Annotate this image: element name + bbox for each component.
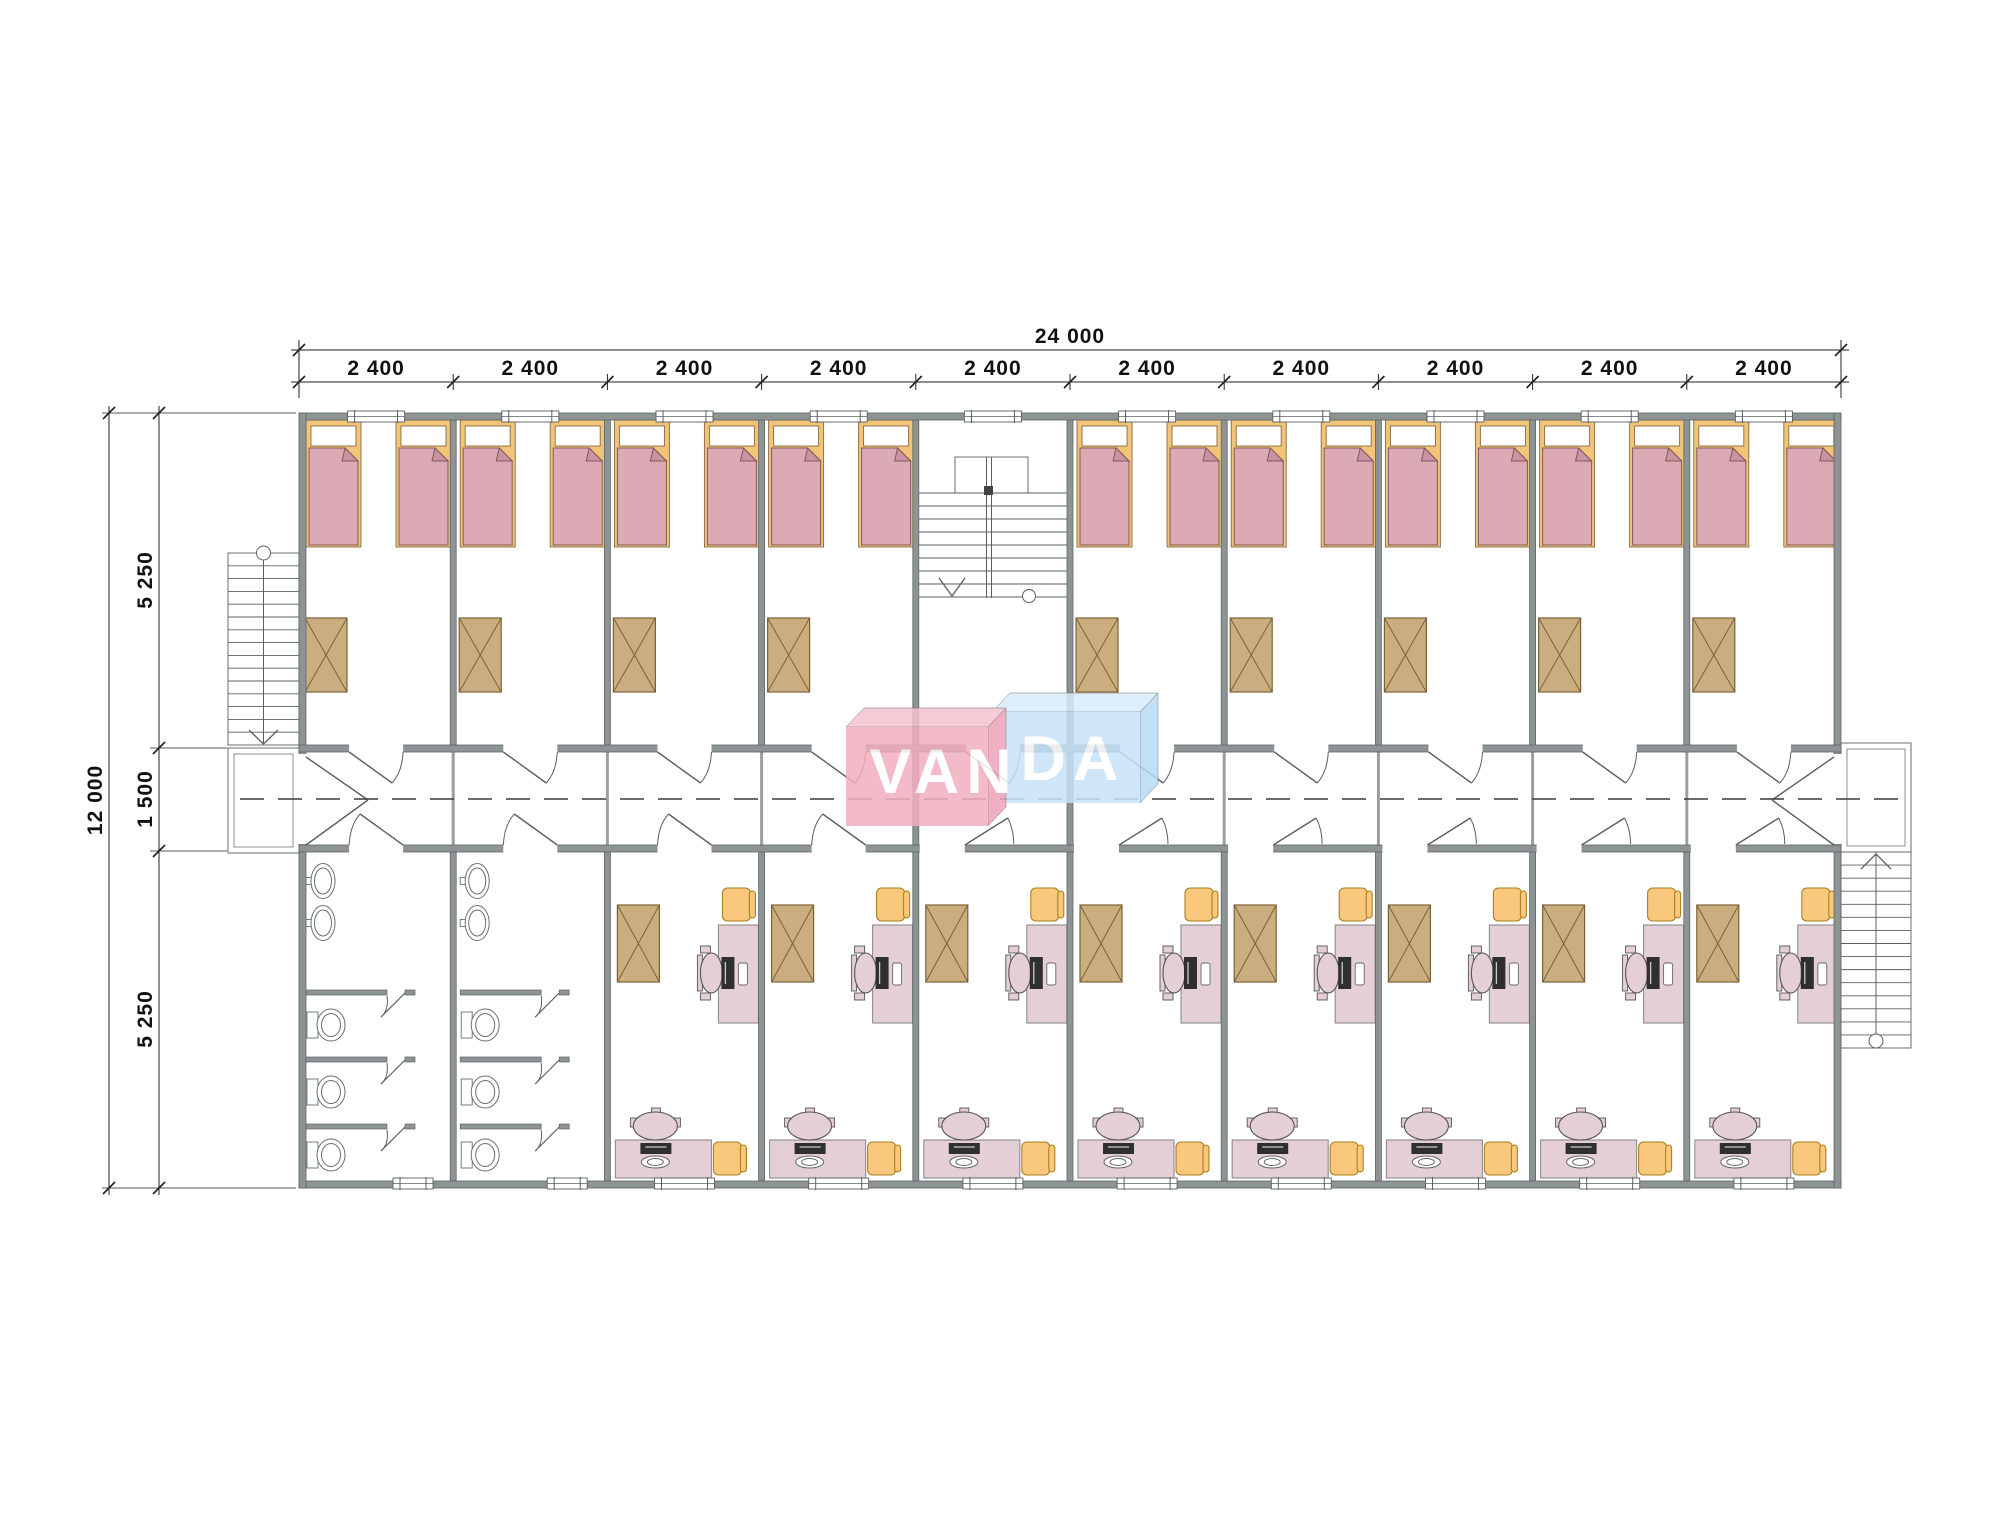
stool-seat [877, 888, 905, 921]
stool [1330, 1142, 1363, 1175]
dim-label-left-total: 12 000 [84, 765, 107, 835]
window [1273, 410, 1330, 423]
stool-back [749, 891, 755, 918]
window [502, 410, 559, 423]
wardrobe-table [1543, 905, 1585, 982]
bed [1540, 420, 1595, 547]
wardrobe-table [1080, 905, 1122, 982]
partition-wall [1530, 420, 1536, 752]
monitor-screen [1338, 957, 1351, 989]
chair-seat [1780, 953, 1802, 993]
bed [1630, 420, 1685, 547]
partition-wall [1684, 852, 1690, 1181]
bed-blanket [1633, 448, 1682, 545]
door-swing-arc [1163, 752, 1174, 783]
office-chair [630, 1108, 680, 1140]
chair-arm [700, 946, 710, 953]
bed-blanket [553, 448, 602, 545]
door-leaf [1736, 818, 1779, 845]
stool [1493, 888, 1526, 921]
stool-back [1058, 891, 1064, 918]
stool [722, 888, 755, 921]
toilet-stall [306, 1124, 415, 1171]
window [547, 1177, 587, 1190]
chair-arm [1163, 946, 1173, 953]
stool-back [1212, 891, 1218, 918]
office-chair [1093, 1108, 1143, 1140]
dim-label-top-segment: 2 400 [810, 357, 868, 380]
bed [614, 420, 669, 547]
window [1735, 410, 1792, 423]
bed-blanket [772, 448, 821, 545]
partition-wall [450, 420, 456, 752]
chair-seat [1404, 1112, 1448, 1140]
door-leaf [1273, 818, 1316, 845]
entry-landing-inner [1847, 749, 1905, 846]
door-opening [349, 744, 403, 753]
toilet-tank [307, 1012, 318, 1038]
entry-landing [228, 748, 299, 853]
door-swing-arc [812, 814, 823, 845]
stool [1648, 888, 1681, 921]
bed-pillow [774, 426, 819, 446]
bedroom [1693, 420, 1839, 692]
wardrobe-table [305, 618, 347, 692]
monitor-screen [1257, 1143, 1288, 1154]
dim-label-top-segment: 2 400 [964, 357, 1022, 380]
chair-arm [1009, 946, 1019, 953]
stall-wall [460, 1057, 541, 1062]
door-opening [658, 744, 712, 753]
stool-seat [722, 888, 750, 921]
bed-blanket [862, 448, 911, 545]
wardrobe-table [617, 905, 659, 982]
door-opening [1382, 844, 1427, 853]
bedroom [305, 420, 451, 692]
bed-blanket [707, 448, 756, 545]
monitor-screen [1801, 957, 1814, 989]
chair-arm [1626, 993, 1636, 1000]
door-leaf [1427, 818, 1470, 845]
monitor-screen [1103, 1143, 1134, 1154]
wardrobe-table [1230, 618, 1272, 692]
stool-back [1366, 891, 1372, 918]
door-opening [1074, 844, 1119, 853]
window [1734, 1177, 1794, 1190]
toilet-tank [461, 1012, 472, 1038]
study-room [1541, 888, 1684, 1178]
bed-pillow [1326, 426, 1371, 446]
chair-seat [1096, 1112, 1140, 1140]
dim-label-top-segment: 2 400 [1427, 357, 1485, 380]
toilet-stall [306, 990, 415, 1041]
stall-wall [306, 990, 387, 995]
bed-pillow [1789, 426, 1834, 446]
wardrobe-table [926, 905, 968, 982]
entrance-door-leaf [306, 757, 368, 800]
stool [1793, 1142, 1826, 1175]
window [1271, 1177, 1331, 1190]
chair-arm [1163, 993, 1173, 1000]
stair-start-circle [257, 546, 271, 560]
monitor-screen [1647, 957, 1660, 989]
door-swing-arc [349, 814, 360, 845]
sink [460, 864, 489, 899]
bed-pillow [1545, 426, 1590, 446]
bed-blanket [1170, 448, 1219, 545]
bed-pillow [619, 426, 664, 446]
toilet-tank [307, 1079, 318, 1105]
chair-arm [700, 993, 710, 1000]
window [1581, 410, 1638, 423]
partition-wall [604, 420, 610, 752]
chair-seat [1009, 953, 1031, 993]
bedroom [1230, 420, 1376, 692]
door-opening [1537, 844, 1582, 853]
dim-label-top-segment: 2 400 [1273, 357, 1331, 380]
stool-back [895, 1145, 901, 1172]
monitor-screen [1411, 1143, 1442, 1154]
office-chair [785, 1108, 835, 1140]
bed-blanket [1787, 448, 1836, 545]
partition-wall [913, 852, 919, 1181]
door-swing-arc [1780, 752, 1791, 783]
partition-wall [1375, 852, 1381, 1181]
dim-label-top-segment: 2 400 [656, 357, 714, 380]
stair-start-circle [1023, 590, 1036, 603]
stair-direction-arrow [939, 578, 965, 596]
bed-blanket [1388, 448, 1437, 545]
door-opening [1737, 744, 1791, 753]
mouse [641, 1156, 669, 1168]
partition-wall [759, 852, 765, 1181]
bed-blanket [1543, 448, 1592, 545]
partition-wall [1221, 420, 1227, 752]
chair-seat [855, 953, 877, 993]
keyboard [1664, 963, 1673, 985]
window [1117, 1177, 1177, 1190]
window [963, 1177, 1023, 1190]
stall-wall-stub [405, 990, 415, 995]
stool-back [1511, 1145, 1517, 1172]
stall-door-arc [535, 996, 541, 1017]
stool-back [1820, 1145, 1826, 1172]
door-leaf [1274, 752, 1317, 783]
door-swing-arc [1779, 818, 1785, 844]
stool-seat [1484, 1142, 1512, 1175]
study-room [924, 888, 1067, 1178]
stool-back [1675, 891, 1681, 918]
logo-box-blue-top [992, 693, 1158, 712]
entry-landing [1841, 743, 1911, 852]
study-room [1078, 888, 1221, 1178]
door-swing-arc [1316, 818, 1322, 844]
bed [1231, 420, 1286, 547]
window [393, 1177, 433, 1190]
stool [868, 1142, 901, 1175]
bed-pillow [1699, 426, 1744, 446]
wardrobe-table [459, 618, 501, 692]
dim-label-left-segment: 5 250 [134, 551, 157, 609]
dim-label-left-segment: 1 500 [134, 770, 157, 828]
door-leaf [1737, 752, 1780, 783]
keyboard [1509, 963, 1518, 985]
stool [1185, 888, 1218, 921]
partition-wall [604, 852, 610, 1181]
chair-arm [855, 993, 865, 1000]
stall-door-arc [381, 1063, 387, 1084]
stool-seat [1185, 888, 1213, 921]
bed-blanket [617, 448, 666, 545]
door-opening [503, 844, 557, 853]
stool-back [1049, 1145, 1055, 1172]
mouse [1721, 1156, 1749, 1168]
wardrobe-table [613, 618, 655, 692]
window [1426, 1177, 1486, 1190]
bedroom [1384, 420, 1530, 692]
dim-label-left-segment: 5 250 [134, 990, 157, 1048]
bed-pillow [709, 426, 754, 446]
stool-seat [1330, 1142, 1358, 1175]
window [964, 410, 1021, 423]
entrance-door-leaf [306, 800, 368, 845]
monitor-screen [1566, 1143, 1597, 1154]
monitor-screen [949, 1143, 980, 1154]
bed-pillow [1236, 426, 1281, 446]
chair-seat [1163, 953, 1185, 993]
stall-wall-stub [405, 1057, 415, 1062]
stool [1031, 888, 1064, 921]
keyboard [1047, 963, 1056, 985]
stall-wall [460, 1124, 541, 1129]
door-swing-arc [1625, 818, 1631, 844]
bed-pillow [1082, 426, 1127, 446]
entry-landing-inner [234, 754, 293, 847]
bed-pillow [465, 426, 510, 446]
entrance-door-leaf [1772, 757, 1834, 800]
bed-blanket [399, 448, 448, 545]
door-swing-arc [1008, 818, 1014, 844]
staircase-center [919, 457, 1067, 603]
mouse [1104, 1156, 1132, 1168]
dim-label-top-segment: 2 400 [1581, 357, 1639, 380]
stool-seat [713, 1142, 741, 1175]
stool [713, 1142, 746, 1175]
wardrobe-table [1234, 905, 1276, 982]
door-opening [503, 744, 557, 753]
door-leaf [1582, 818, 1625, 845]
door-opening [1691, 844, 1736, 853]
bed-pillow [1635, 426, 1680, 446]
door-leaf [514, 814, 557, 845]
stool-seat [1031, 888, 1059, 921]
stall-wall [306, 1124, 387, 1129]
partition-wall [1221, 852, 1227, 1181]
window [348, 410, 405, 423]
chair-arm [1009, 993, 1019, 1000]
stool [1022, 1142, 1055, 1175]
door-leaf [1583, 752, 1626, 783]
wardrobe-table [1693, 618, 1735, 692]
bed-blanket [1234, 448, 1283, 545]
study-room [1386, 888, 1529, 1178]
office-chair [1556, 1108, 1606, 1140]
partition-wall [913, 420, 919, 752]
chair-arm [1317, 993, 1327, 1000]
chair-arm [1317, 946, 1327, 953]
module-joint-line [606, 752, 609, 845]
stool [1339, 888, 1372, 921]
stall-wall-stub [405, 1124, 415, 1129]
bedroom [1539, 420, 1685, 692]
bed [1321, 420, 1376, 547]
logo-text-left: VAN [869, 737, 1018, 807]
chair-seat [1250, 1112, 1294, 1140]
chair-seat [788, 1112, 832, 1140]
office-chair [939, 1108, 989, 1140]
stool-seat [1802, 888, 1830, 921]
stool [1484, 1142, 1517, 1175]
stall-wall [460, 990, 541, 995]
toilet-tank [461, 1142, 472, 1168]
chair-arm [1626, 946, 1636, 953]
keyboard [893, 963, 902, 985]
wardrobe-table [1076, 618, 1118, 692]
stall-door-arc [381, 1130, 387, 1151]
stool-seat [1793, 1142, 1821, 1175]
bed-pillow [1390, 426, 1435, 446]
stall-door-arc [535, 1063, 541, 1084]
partition-wall [759, 420, 765, 752]
monitor-screen [1030, 957, 1043, 989]
door-leaf [1429, 752, 1472, 783]
bedroom [459, 420, 605, 692]
logo-watermark: VANDA [846, 693, 1158, 826]
mouse [796, 1156, 824, 1168]
chair-seat [700, 953, 722, 993]
door-leaf [349, 752, 392, 783]
monitor-screen [795, 1143, 826, 1154]
partition-wall [1530, 852, 1536, 1181]
bedroom [1076, 420, 1222, 692]
window [1427, 410, 1484, 423]
study-room [615, 888, 758, 1178]
keyboard [1201, 963, 1210, 985]
door-swing-arc [546, 752, 557, 783]
logo-text-right: DA [1021, 724, 1126, 794]
stool-seat [1648, 888, 1676, 921]
bed-pillow [864, 426, 909, 446]
dim-label-top-segment: 2 400 [1118, 357, 1176, 380]
door-leaf [503, 752, 546, 783]
bed-pillow [311, 426, 356, 446]
logo-box-pink-top [846, 708, 1006, 727]
bed-blanket [1478, 448, 1527, 545]
bed [704, 420, 759, 547]
dim-label-top-segment: 2 400 [347, 357, 405, 380]
bed [1385, 420, 1440, 547]
staircase-right [1841, 743, 1911, 1048]
door-swing-arc [1472, 752, 1483, 783]
study-room [770, 888, 913, 1178]
staircase-left [228, 546, 299, 853]
chair-arm [1471, 993, 1481, 1000]
door-opening [1583, 744, 1637, 753]
stall-door-arc [381, 996, 387, 1017]
wardrobe-table [1388, 905, 1430, 982]
bed-blanket [1080, 448, 1129, 545]
monitor-screen [1720, 1143, 1751, 1154]
stool-back [1357, 1145, 1363, 1172]
mouse [1258, 1156, 1286, 1168]
chair-arm [855, 946, 865, 953]
partition-wall [1375, 420, 1381, 752]
chair-seat [1713, 1112, 1757, 1140]
chair-arm [1471, 946, 1481, 953]
bed [306, 420, 361, 547]
study-room [1232, 888, 1375, 1178]
toilet-stall [460, 990, 569, 1041]
bed [460, 420, 515, 547]
stool-seat [868, 1142, 896, 1175]
stool-seat [1022, 1142, 1050, 1175]
chair-seat [1559, 1112, 1603, 1140]
floor-plan-drawing: 24 0002 4002 4002 4002 4002 4002 4002 40… [0, 0, 2000, 1520]
chair-arm [1780, 993, 1790, 1000]
door-swing-arc [503, 814, 514, 845]
stool-seat [1339, 888, 1367, 921]
door-leaf [1119, 818, 1162, 845]
dim-label-top-segment: 2 400 [502, 357, 560, 380]
sink [306, 864, 335, 899]
office-chair [1710, 1108, 1760, 1140]
door-swing-arc [1162, 818, 1168, 844]
bed-blanket [1324, 448, 1373, 545]
wardrobe-table [772, 905, 814, 982]
floor-plan-canvas: 24 0002 4002 4002 4002 4002 4002 4002 40… [0, 0, 2000, 1520]
chair-seat [1626, 953, 1648, 993]
door-opening [920, 844, 965, 853]
door-opening [1274, 744, 1328, 753]
office-chair [1247, 1108, 1297, 1140]
bed-pillow [1172, 426, 1217, 446]
stool-back [1520, 891, 1526, 918]
monitor-screen [876, 957, 889, 989]
stool-seat [1176, 1142, 1204, 1175]
stool-seat [1493, 888, 1521, 921]
module-joint-line [1223, 752, 1226, 845]
window [1119, 410, 1176, 423]
bed [1077, 420, 1132, 547]
window [1580, 1177, 1640, 1190]
bed [396, 420, 451, 547]
door-swing-arc [1317, 752, 1328, 783]
door-leaf [669, 814, 712, 845]
bed [769, 420, 824, 547]
keyboard [1355, 963, 1364, 985]
mouse [1567, 1156, 1595, 1168]
stool-back [904, 891, 910, 918]
door-swing-arc [392, 752, 403, 783]
monitor-screen [640, 1143, 671, 1154]
logo-box-blue-side [1140, 693, 1158, 803]
door-leaf [360, 814, 403, 845]
keyboard [1818, 963, 1827, 985]
bedroom [768, 420, 914, 692]
monitor-screen [1184, 957, 1197, 989]
stool [877, 888, 910, 921]
door-opening [1228, 844, 1273, 853]
